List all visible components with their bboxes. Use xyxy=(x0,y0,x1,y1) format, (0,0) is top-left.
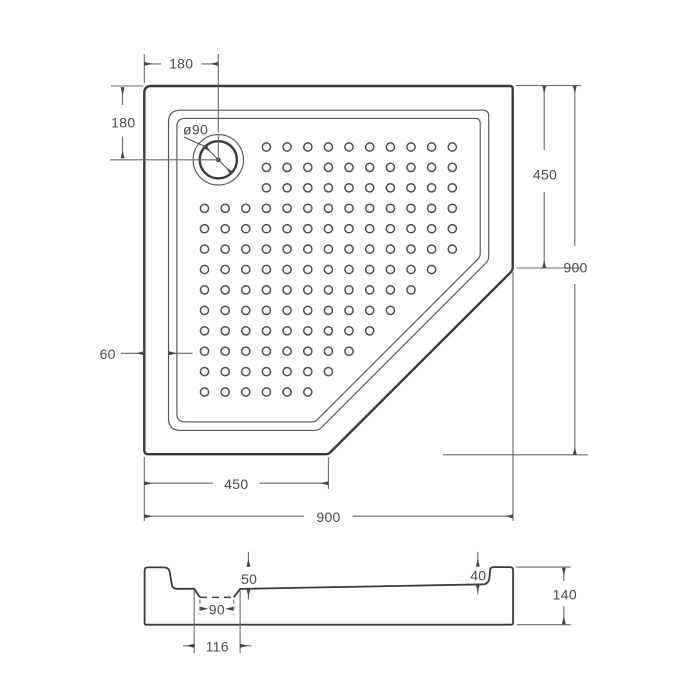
svg-text:40: 40 xyxy=(470,568,486,584)
svg-text:900: 900 xyxy=(316,509,340,525)
svg-text:90: 90 xyxy=(209,602,225,618)
svg-text:180: 180 xyxy=(169,56,193,72)
svg-text:450: 450 xyxy=(533,167,557,183)
svg-text:450: 450 xyxy=(224,476,248,492)
svg-text:60: 60 xyxy=(100,346,116,362)
svg-text:900: 900 xyxy=(563,260,587,276)
svg-text:ø90: ø90 xyxy=(183,122,208,138)
svg-text:50: 50 xyxy=(241,571,257,587)
svg-text:116: 116 xyxy=(206,639,229,655)
svg-text:140: 140 xyxy=(553,586,577,602)
svg-text:180: 180 xyxy=(111,114,135,130)
